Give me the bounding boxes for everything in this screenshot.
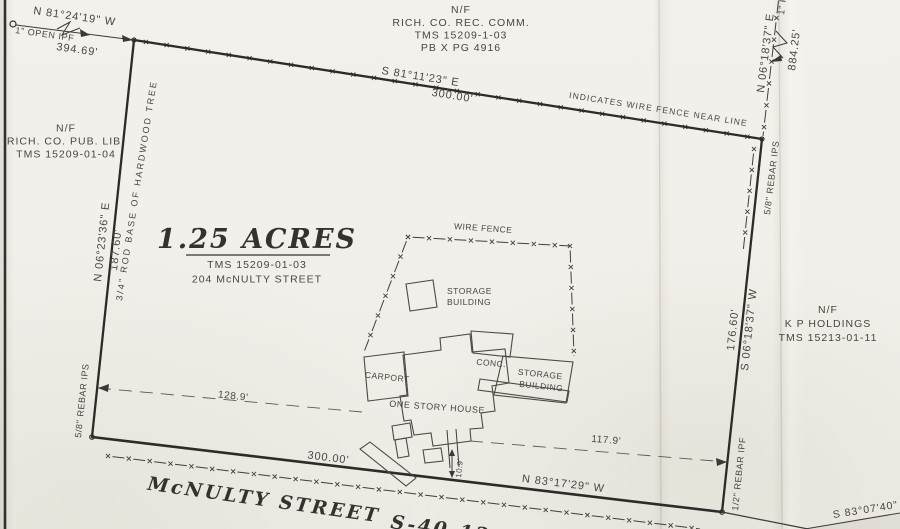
- sw-corner-monument-label: 5/8" REBAR IPS: [73, 363, 91, 438]
- adjoiner-west-tms: TMS 15209-01-04: [16, 149, 116, 161]
- concrete-pad-outline: [471, 331, 513, 357]
- ne-corner-monument-label: 5/8" REBAR IPS: [762, 140, 781, 215]
- carport-label: CARPORT: [364, 370, 410, 385]
- wire-fence-label: WIRE FENCE: [454, 221, 513, 235]
- adjoiner-north-tms: TMS 15209-1-03: [415, 30, 508, 42]
- storage-small-label-2: BUILDING: [447, 297, 491, 307]
- street-name-label: McNULTY STREET: [145, 473, 381, 528]
- parcel-acreage-label: 1.25 ACRES: [157, 224, 357, 255]
- labels: N 81°24'19" W 1" OPEN IPF 394.69' N/F RI…: [7, 0, 899, 529]
- house-porch: [423, 448, 443, 463]
- house-outline: [400, 334, 509, 446]
- adjoiner-west-name: RICH. CO. PUB. LIB.: [7, 136, 125, 148]
- dim-west-label: 128.9': [217, 389, 249, 403]
- adjoiner-north-name: RICH. CO. REC. COMM.: [392, 17, 529, 29]
- north-line-distance-label: 300.00': [431, 87, 474, 105]
- adjoiner-north-nf: N/F: [451, 4, 471, 16]
- tie-ne-distance-label: 884.25': [786, 28, 803, 71]
- house-label: ONE STORY HOUSE: [389, 399, 485, 416]
- house-step-2: [395, 438, 409, 458]
- adjoiner-east-tms: TMS 15213-01-11: [779, 332, 878, 344]
- nw-corner-monument-label: 3/4" ROD BASE OF HARDWOOD TREE: [114, 79, 159, 301]
- tie-ne-bearing-label: N 06°18'37" E: [755, 12, 777, 93]
- se-corner-monument-label: 1/2" REBAR IPF: [730, 436, 748, 511]
- tie-nw-arrowhead: [122, 35, 133, 42]
- leader-nw-arrowhead: [80, 29, 90, 37]
- storage-small-label-1: STORAGE: [447, 286, 492, 296]
- parcel-address-label: 204 McNULTY STREET: [192, 274, 322, 286]
- dim-east-label: 117.9': [591, 434, 622, 448]
- dim-east-arrowhead: [716, 458, 727, 466]
- south-line-bearing-label: N 83°17'29" W: [521, 473, 605, 495]
- adjoiner-north-plat-ref: PB X PG 4916: [421, 42, 501, 54]
- adjoiner-west-nf: N/F: [56, 123, 76, 135]
- storage-building-small-outline: [406, 280, 437, 311]
- house-step-1: [392, 423, 412, 440]
- parcel-tms-label: TMS 15209-01-03: [207, 259, 307, 271]
- fold-crease-right: [779, 0, 782, 529]
- plat-drawing: N 81°24'19" W 1" OPEN IPF 394.69' N/F RI…: [0, 0, 900, 529]
- adjoiner-east-nf: N/F: [818, 304, 838, 316]
- street-route-label: S-40-12: [389, 511, 492, 529]
- adjoiner-east-name: K P HOLDINGS: [785, 318, 872, 330]
- tie-ne-monument-label: 1" P: [776, 0, 788, 15]
- road-continuation-line: [722, 512, 808, 529]
- survey-plat-scan: N 81°24'19" W 1" OPEN IPF 394.69' N/F RI…: [0, 0, 900, 529]
- dim-west-arrowhead: [98, 384, 109, 392]
- boundary-south-road-line: [92, 437, 722, 512]
- tie-nw-monument-label: 1" OPEN IPF: [15, 25, 75, 43]
- dim-walk-arrow-up: [449, 449, 455, 456]
- fold-crease-center: [659, 0, 661, 529]
- tie-nw-distance-label: 394.69': [56, 41, 99, 59]
- dim-walk-label: 10.9': [454, 458, 465, 478]
- conc-label: CONC.: [476, 357, 507, 370]
- storage-large-label-2: BUILDING: [519, 379, 564, 394]
- tie-nw-bearing-label: N 81°24'19" W: [33, 5, 117, 28]
